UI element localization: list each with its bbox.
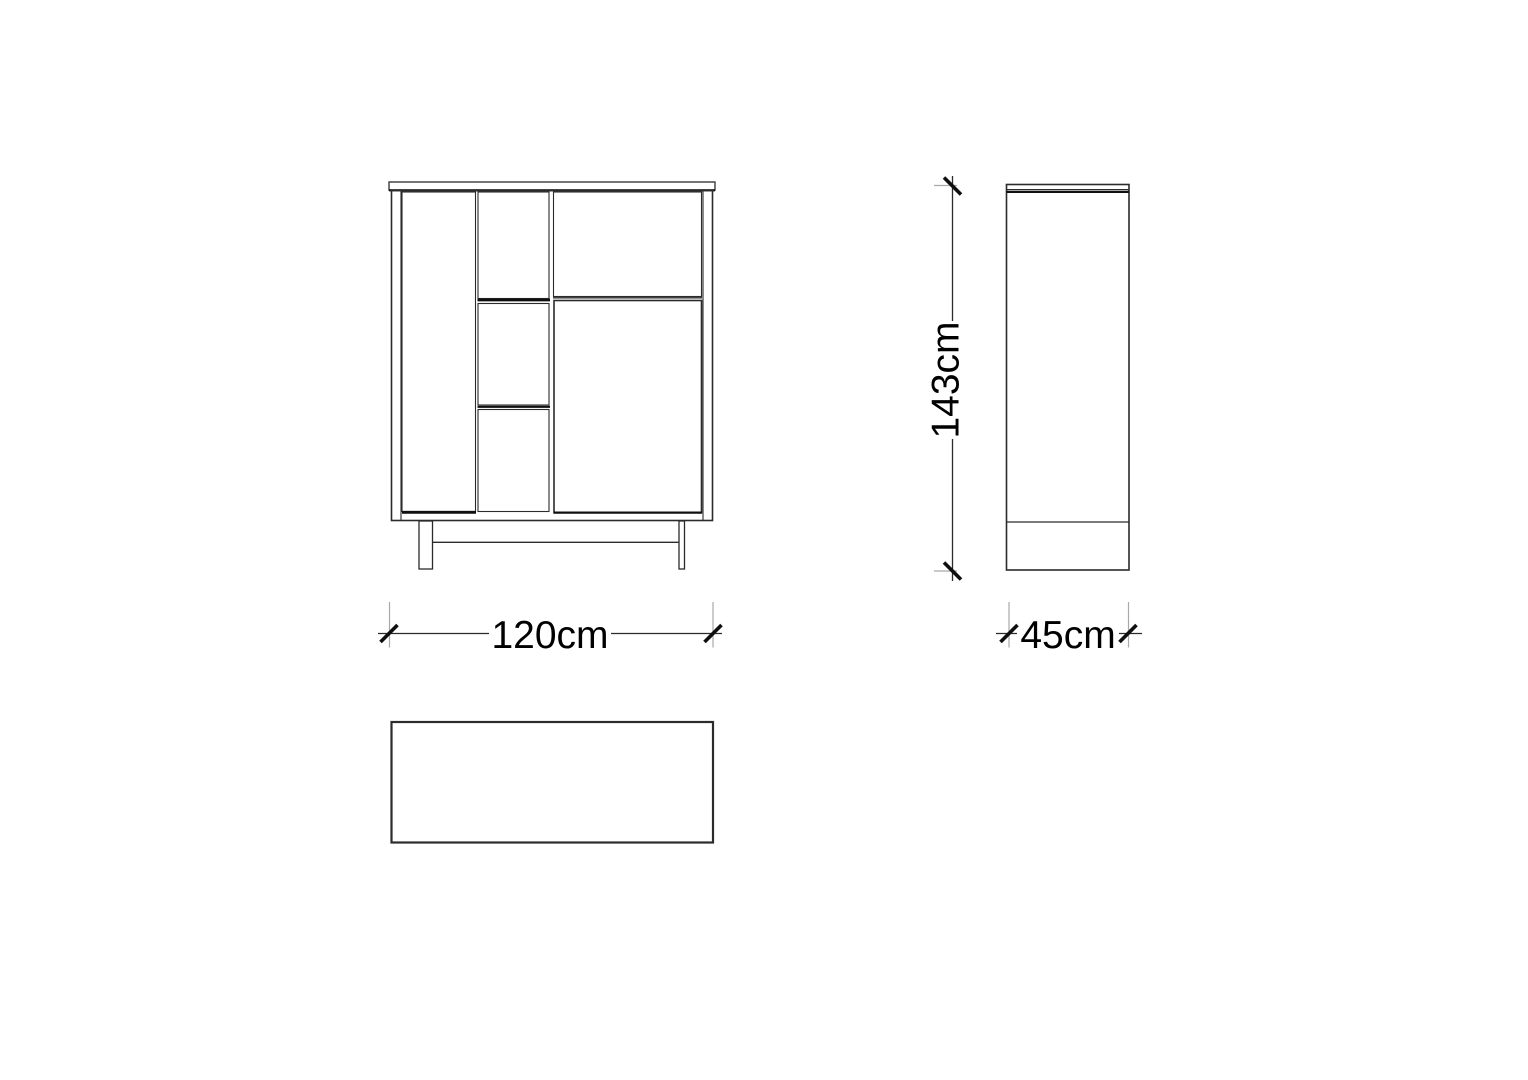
height-dimension-label: 143cm	[925, 321, 968, 438]
front-right-leg	[679, 521, 685, 569]
front-middle-center-front	[478, 304, 549, 406]
width-dimension-label: 120cm	[491, 614, 608, 657]
front-view	[389, 182, 715, 569]
depth-dimension-label: 45cm	[1020, 614, 1115, 657]
furniture-dimension-drawing: 120cm 45cm 143cm	[0, 0, 1528, 1080]
side-view	[1007, 185, 1130, 571]
top-view	[392, 722, 714, 843]
side-outline	[1007, 185, 1130, 571]
front-left-door	[402, 192, 476, 512]
front-left-leg	[419, 521, 433, 569]
front-right-door	[554, 301, 702, 513]
technical-drawing-page: 120cm 45cm 143cm	[0, 0, 1528, 1080]
width-dimension: 120cm	[378, 602, 722, 657]
front-middle-bottom-front	[478, 410, 549, 512]
top-view-outline	[392, 722, 714, 843]
front-top-panel	[389, 182, 715, 190]
height-dimension: 143cm	[925, 176, 968, 581]
depth-dimension: 45cm	[996, 602, 1142, 657]
front-middle-top-front	[478, 192, 549, 299]
front-right-drawer	[554, 192, 702, 297]
front-carcass	[392, 191, 713, 521]
